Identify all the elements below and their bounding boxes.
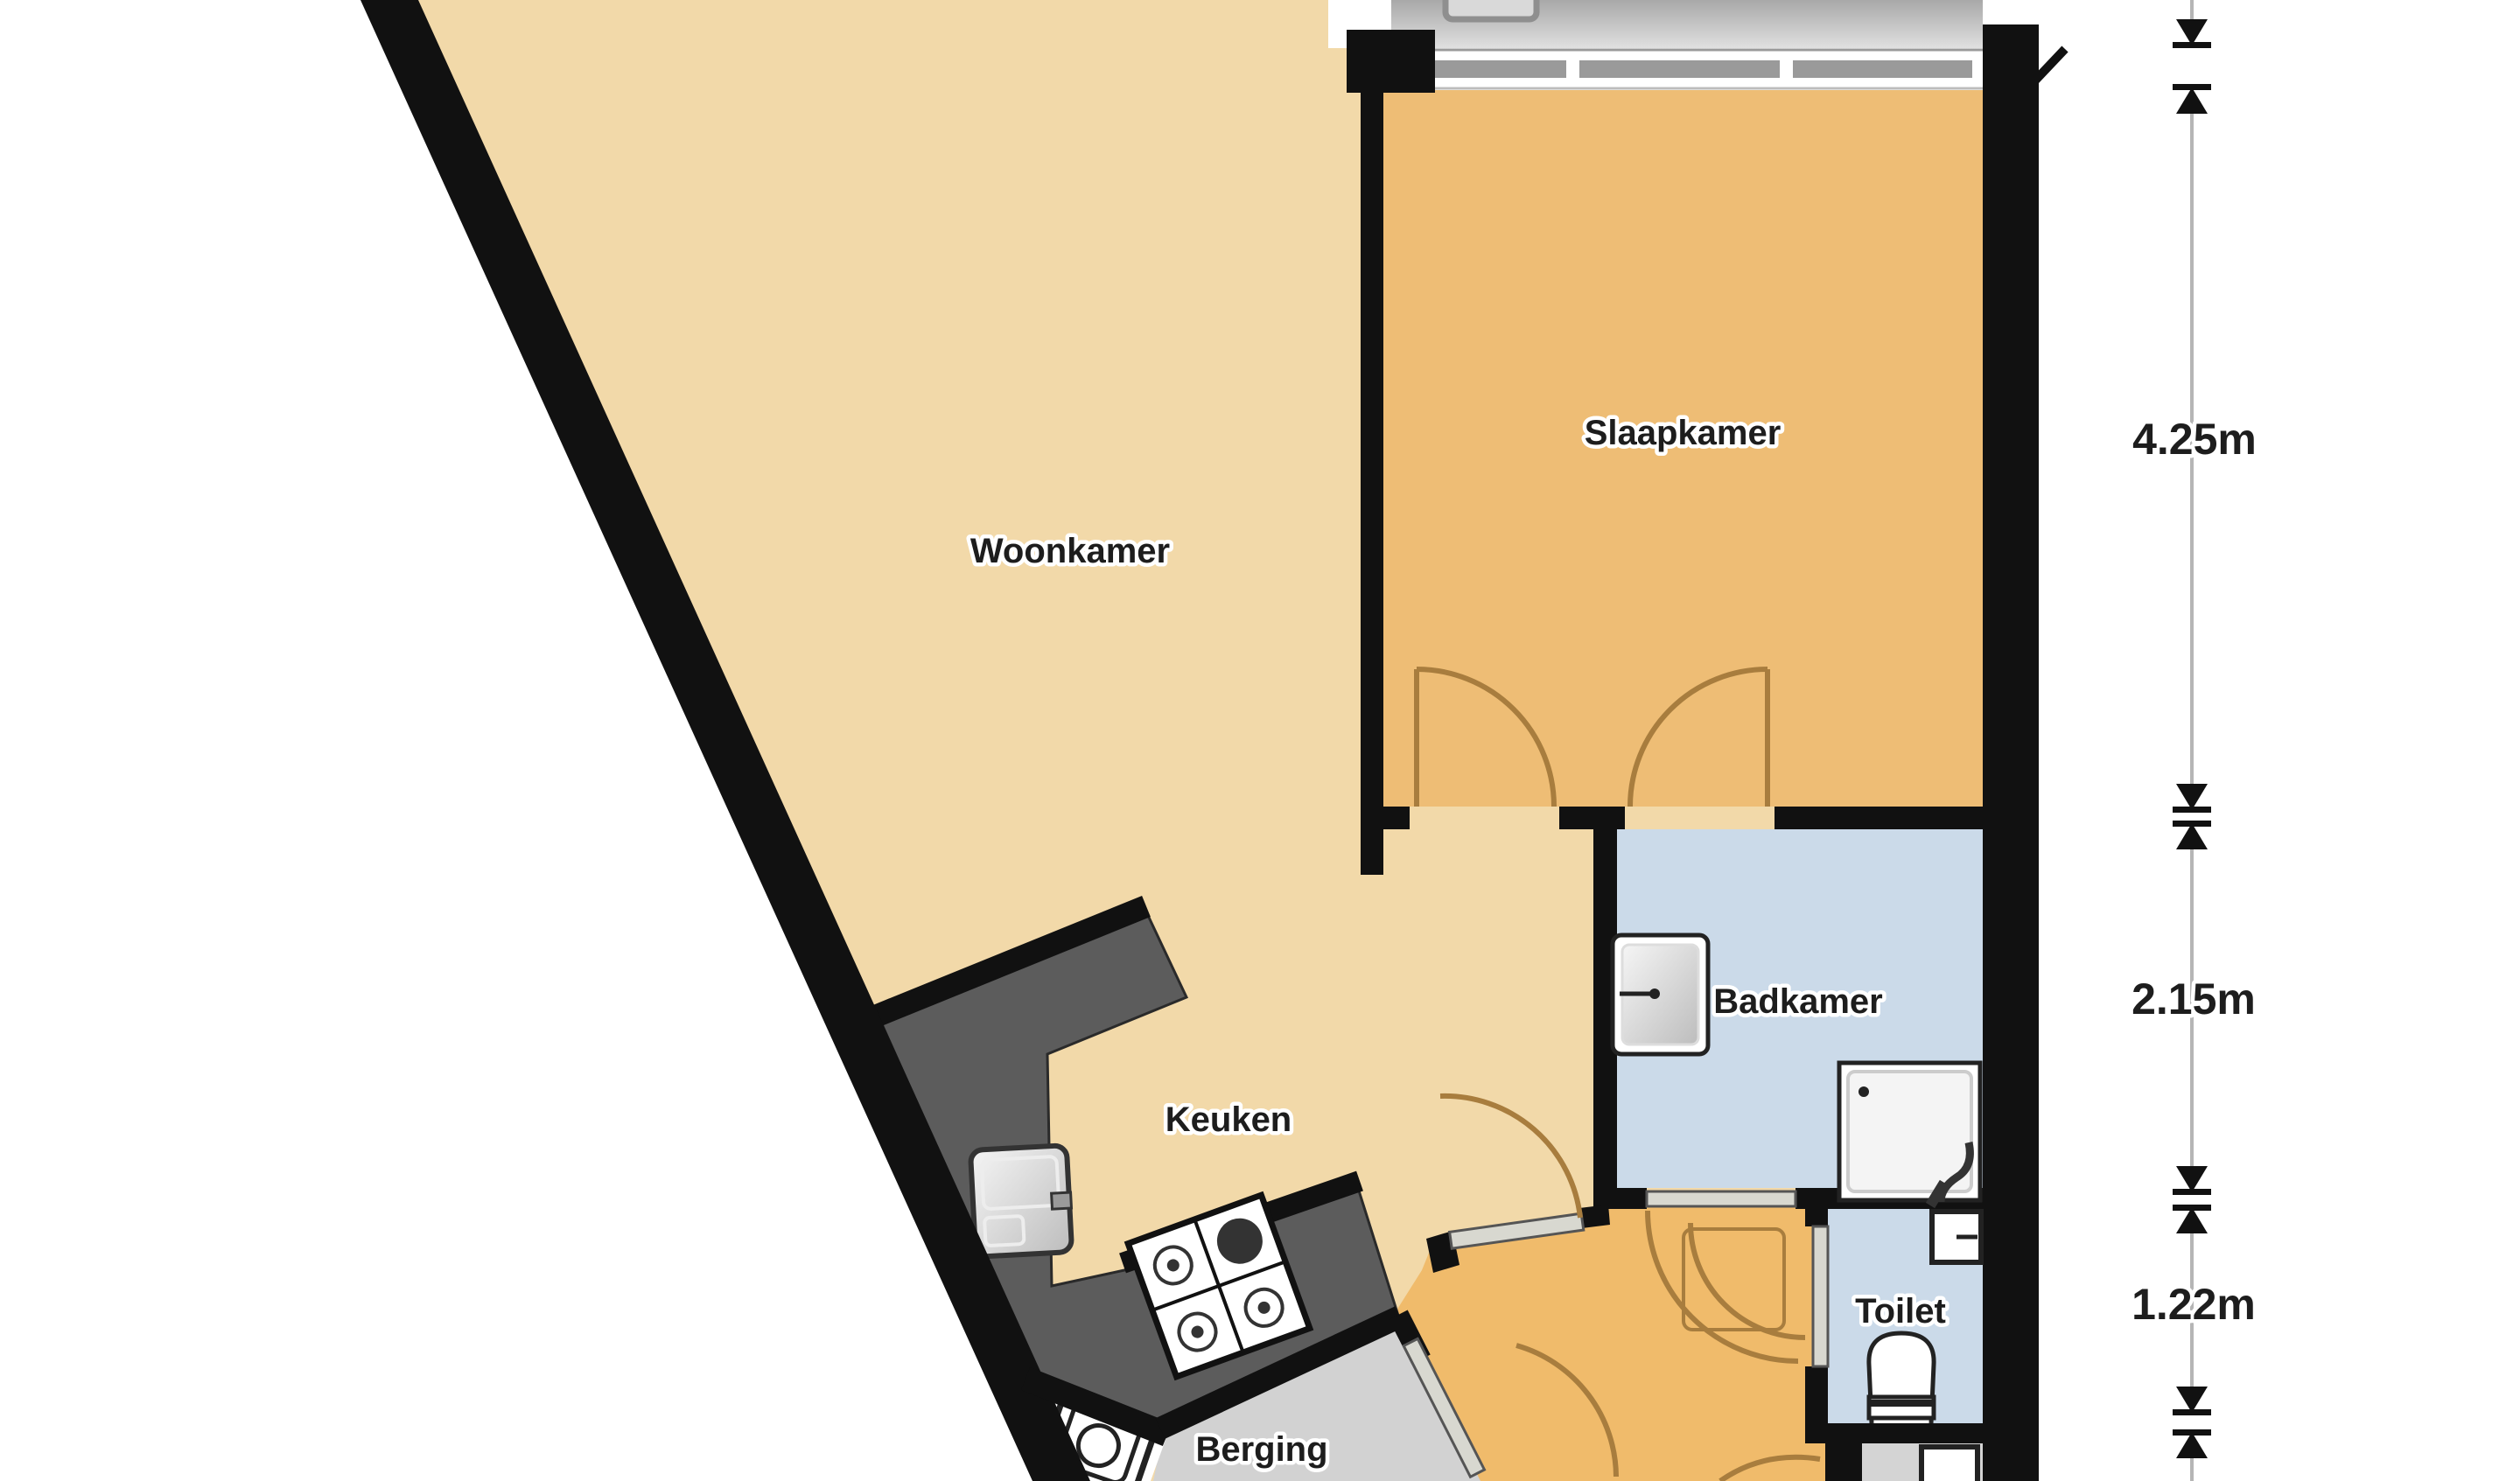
svg-text:2.15m: 2.15m — [2131, 975, 2256, 1023]
svg-text:Keuken: Keuken — [1165, 1100, 1292, 1139]
svg-text:1.22m: 1.22m — [2131, 1280, 2256, 1329]
svg-text:Woonkamer: Woonkamer — [970, 532, 1170, 570]
svg-text:Badkamer: Badkamer — [1713, 982, 1882, 1021]
svg-text:Toilet: Toilet — [1855, 1292, 1946, 1331]
svg-text:4.25m: 4.25m — [2132, 415, 2257, 464]
svg-text:Slaapkamer: Slaapkamer — [1585, 414, 1781, 452]
svg-text:Berging: Berging — [1195, 1430, 1327, 1469]
